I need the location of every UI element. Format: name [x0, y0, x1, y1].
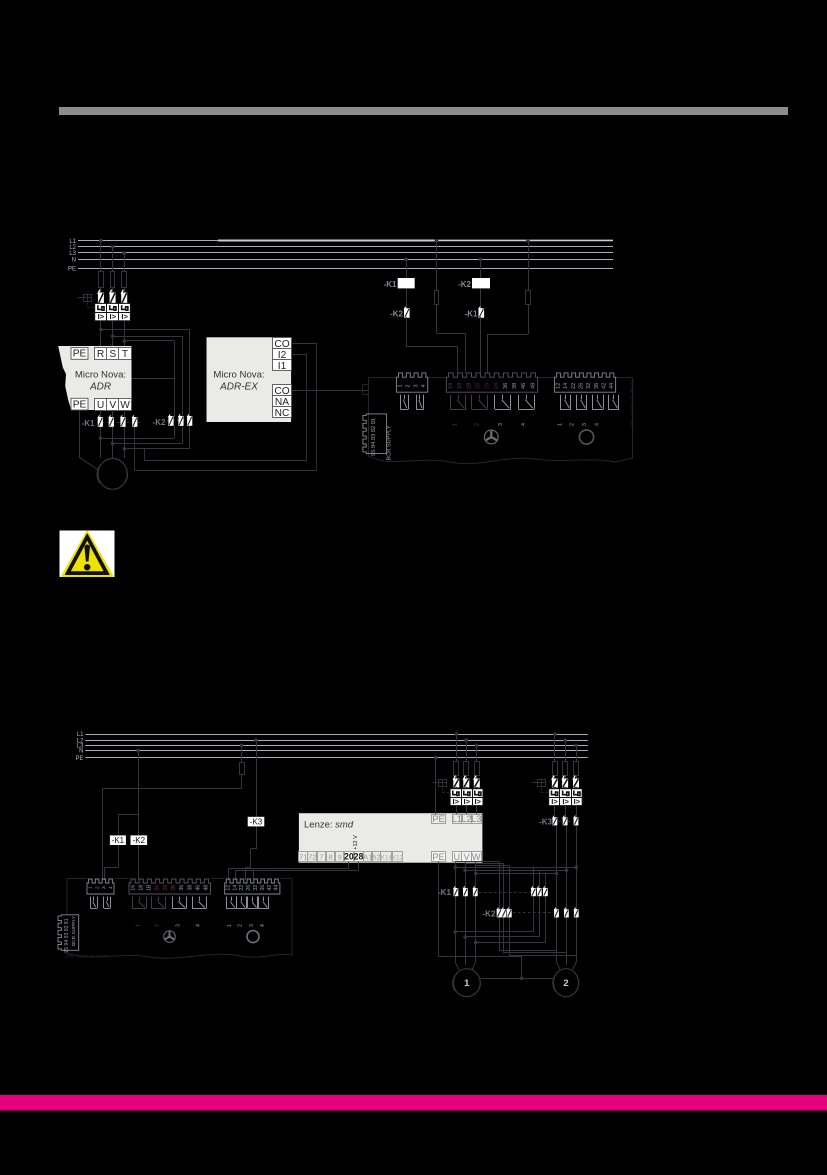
svg-text:18: 18: [457, 383, 463, 389]
svg-text:PE: PE: [68, 267, 76, 273]
svg-text:72: 72: [308, 853, 316, 862]
svg-text:I>: I>: [551, 797, 558, 806]
svg-text:9: 9: [338, 853, 342, 862]
svg-text:12: 12: [225, 885, 231, 891]
svg-text:PE: PE: [432, 814, 444, 824]
svg-text:L1: L1: [69, 239, 76, 245]
svg-text:36: 36: [503, 383, 509, 389]
svg-text:U: U: [454, 852, 461, 862]
svg-text:3: 3: [498, 423, 504, 426]
svg-text:32: 32: [253, 885, 259, 891]
svg-text:N: N: [79, 749, 83, 755]
svg-text:I>: I>: [562, 797, 569, 806]
svg-text:1: 1: [227, 924, 233, 927]
svg-text:I>: I>: [474, 797, 481, 806]
svg-text:42: 42: [267, 885, 273, 891]
svg-text:L2: L2: [461, 814, 471, 824]
svg-text:4: 4: [260, 924, 266, 927]
svg-text:44: 44: [609, 383, 615, 389]
svg-text:92: 92: [371, 426, 377, 432]
svg-text:91: 91: [64, 918, 70, 924]
svg-text:S: S: [109, 349, 116, 360]
svg-text:94: 94: [64, 940, 70, 946]
svg-text:2: 2: [563, 978, 568, 989]
svg-text:2B: 2B: [494, 382, 500, 389]
svg-text:PE: PE: [73, 399, 87, 410]
svg-text:1: 1: [557, 423, 563, 426]
svg-text:-K3: -K3: [539, 818, 552, 827]
svg-text:L1: L1: [452, 814, 462, 824]
svg-text:28: 28: [163, 885, 169, 891]
svg-text:ADR-EX: ADR-EX: [219, 382, 258, 393]
svg-text:14: 14: [563, 383, 569, 389]
svg-text:3: 3: [582, 423, 588, 426]
svg-text:BCR SUPPLY: BCR SUPPLY: [387, 425, 393, 460]
svg-text:26: 26: [475, 383, 481, 389]
svg-text:38: 38: [187, 885, 193, 891]
svg-text:36: 36: [594, 383, 600, 389]
svg-text:91: 91: [371, 418, 377, 424]
svg-text:2: 2: [405, 384, 411, 387]
svg-text:93: 93: [64, 933, 70, 939]
svg-text:-K1: -K1: [82, 419, 95, 428]
svg-text:-K2: -K2: [390, 309, 403, 318]
svg-text:1: 1: [135, 924, 141, 927]
svg-text:62: 62: [372, 853, 380, 862]
svg-text:2: 2: [238, 924, 244, 927]
svg-text:44: 44: [274, 885, 280, 891]
svg-text:2: 2: [94, 886, 100, 889]
svg-text:46: 46: [195, 885, 201, 891]
svg-text:48: 48: [204, 885, 210, 891]
svg-text:-K2: -K2: [458, 280, 471, 289]
svg-text:L1: L1: [77, 732, 84, 738]
svg-text:I1: I1: [278, 361, 287, 372]
svg-text:A1: A1: [363, 853, 372, 862]
svg-text:94: 94: [371, 441, 377, 448]
svg-text:12: 12: [556, 383, 562, 389]
svg-text:I>: I>: [98, 312, 105, 321]
svg-text:2: 2: [569, 423, 575, 426]
svg-text:14: 14: [232, 885, 238, 891]
svg-text:I>: I>: [464, 797, 471, 806]
svg-text:18: 18: [138, 885, 144, 891]
svg-text:20: 20: [344, 852, 354, 862]
svg-text:NC: NC: [275, 408, 290, 419]
svg-text:2: 2: [475, 423, 481, 426]
svg-text:32: 32: [586, 383, 592, 389]
svg-text:T: T: [122, 349, 128, 360]
svg-text:W: W: [472, 852, 481, 862]
svg-text:I>: I>: [121, 312, 128, 321]
svg-text:ZWL 1-43660 00 280 00Z: ZWL 1-43660 00 280 00Z: [630, 379, 635, 427]
svg-text:3: 3: [101, 886, 107, 889]
svg-text:I>: I>: [110, 312, 117, 321]
svg-text:4: 4: [195, 924, 201, 927]
svg-text:-K2: -K2: [153, 418, 166, 427]
svg-text:1: 1: [453, 423, 459, 426]
svg-text:K12: K12: [392, 855, 404, 862]
svg-text:71: 71: [299, 853, 307, 862]
svg-text:4: 4: [421, 384, 427, 387]
svg-text:PE: PE: [73, 349, 87, 360]
svg-text:3: 3: [249, 924, 255, 927]
svg-text:N: N: [72, 258, 76, 264]
svg-text:Micro Nova:: Micro Nova:: [213, 370, 264, 381]
svg-text:-K1: -K1: [465, 309, 478, 318]
svg-text:42: 42: [601, 383, 607, 389]
svg-text:36: 36: [260, 885, 266, 891]
svg-text:28: 28: [485, 383, 491, 389]
svg-text:-K2: -K2: [483, 909, 496, 918]
svg-text:2: 2: [155, 924, 161, 927]
svg-text:92: 92: [64, 925, 70, 931]
svg-text:4: 4: [521, 423, 527, 426]
svg-text:1: 1: [88, 886, 94, 889]
svg-text:-K1: -K1: [384, 280, 397, 289]
svg-text:L3: L3: [69, 251, 76, 257]
svg-text:I>: I>: [574, 797, 581, 806]
svg-text:36: 36: [179, 885, 185, 891]
svg-text:+12 V: +12 V: [353, 835, 359, 850]
svg-text:V: V: [463, 852, 470, 862]
svg-text:26: 26: [155, 885, 161, 891]
svg-text:BCR SUPPLY: BCR SUPPLY: [71, 915, 77, 946]
svg-text:16: 16: [448, 383, 454, 389]
svg-text:1B: 1B: [466, 382, 472, 389]
svg-text:Lenze: smd: Lenze: smd: [304, 820, 354, 831]
svg-text:95: 95: [64, 947, 70, 953]
svg-text:R: R: [97, 349, 104, 360]
svg-text:V: V: [109, 400, 116, 411]
svg-text:46: 46: [521, 383, 527, 389]
svg-text:ADR: ADR: [89, 382, 111, 393]
svg-text:L3: L3: [471, 814, 481, 824]
svg-text:26: 26: [246, 885, 252, 891]
svg-text:8: 8: [328, 853, 332, 862]
svg-text:16: 16: [130, 885, 136, 891]
svg-text:4: 4: [108, 886, 114, 889]
svg-text:28: 28: [354, 852, 364, 862]
svg-text:PE: PE: [75, 756, 83, 762]
svg-text:22: 22: [571, 383, 577, 389]
svg-text:7: 7: [319, 853, 323, 862]
svg-text:48: 48: [530, 383, 536, 389]
svg-text:95: 95: [371, 450, 377, 456]
svg-text:4: 4: [595, 423, 601, 426]
svg-text:-K3: -K3: [250, 818, 263, 827]
svg-text:22: 22: [239, 885, 245, 891]
svg-text:-K1: -K1: [112, 836, 125, 845]
svg-text:3: 3: [413, 384, 419, 387]
svg-text:1: 1: [398, 384, 404, 387]
svg-text:I>: I>: [453, 797, 460, 806]
svg-text:-K2: -K2: [133, 836, 146, 845]
svg-text:38: 38: [512, 383, 518, 389]
svg-text:26: 26: [579, 383, 585, 389]
svg-text:-K1: -K1: [438, 888, 451, 897]
svg-text:3: 3: [175, 924, 181, 927]
svg-text:1B: 1B: [147, 884, 153, 891]
svg-text:1: 1: [464, 978, 470, 989]
svg-text:U: U: [97, 400, 104, 411]
svg-text:W: W: [120, 400, 130, 411]
svg-text:93: 93: [371, 434, 377, 440]
svg-text:K14: K14: [381, 855, 393, 862]
svg-text:Micro Nova:: Micro Nova:: [75, 370, 126, 381]
svg-text:PE: PE: [432, 852, 444, 862]
svg-text:2B: 2B: [171, 884, 177, 891]
svg-text:ZWL 01 802 08 438 00: ZWL 01 802 08 438 00: [65, 954, 108, 959]
